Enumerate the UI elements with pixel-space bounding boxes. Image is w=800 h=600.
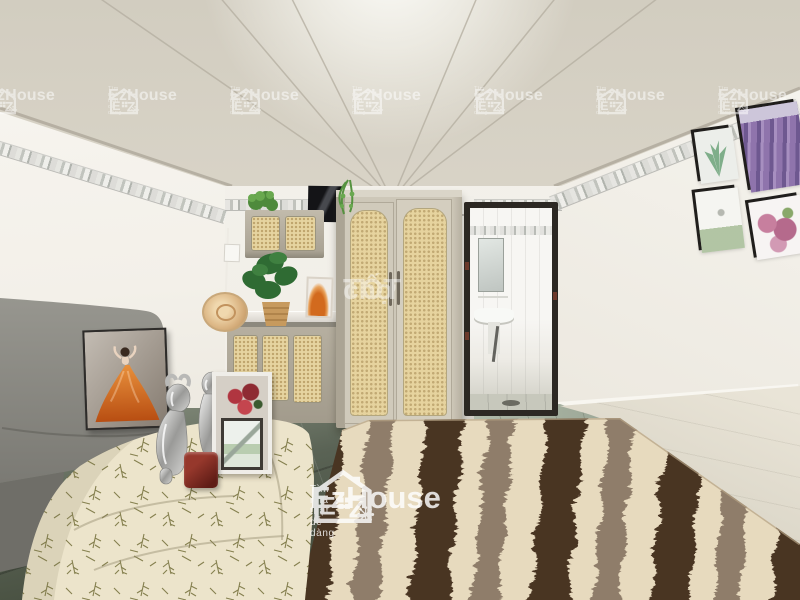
- plant-on-cabinet: [244, 186, 280, 214]
- bathroom-shelf: [478, 296, 508, 298]
- lamp-ring: [216, 304, 236, 321]
- wardrobe-handle: [397, 271, 400, 305]
- bathroom-mirror: [478, 238, 504, 292]
- picture-aloe-plant: [691, 125, 736, 182]
- mini-orange-artwork: [305, 277, 333, 319]
- framed-landscape-mini: [221, 418, 263, 470]
- monstera-plant: [240, 246, 306, 328]
- cane-panel: [350, 210, 388, 416]
- display-lantern-box: [212, 372, 272, 474]
- door-hinge: [553, 292, 557, 300]
- lower-cabinet-door: [293, 335, 322, 403]
- floor-drain: [502, 400, 520, 406]
- switch-box: [224, 244, 241, 263]
- wardrobe: [336, 190, 462, 428]
- bathroom-interior: [470, 208, 552, 410]
- aloe-art: [694, 127, 739, 184]
- hanging-plant: [334, 178, 362, 218]
- wardrobe-door-left: [344, 202, 394, 424]
- shag-rug: [290, 408, 800, 600]
- wardrobe-door-right: [396, 199, 452, 424]
- picture-pink-flowers: [745, 192, 800, 257]
- red-flowers: [222, 382, 266, 418]
- picture-field-sketch: [691, 185, 741, 251]
- wardrobe-handle: [389, 272, 392, 306]
- bathroom-sink: [474, 308, 514, 323]
- bathroom-door: [464, 202, 558, 416]
- red-gift-box: [184, 452, 218, 488]
- cane-panel: [403, 208, 447, 416]
- bathroom-tile-border: [470, 226, 552, 235]
- rattan-wall-lamp: [202, 292, 248, 332]
- door-hinge: [465, 262, 469, 270]
- door-hinge: [465, 332, 469, 340]
- apartment-photo: E Z: [0, 0, 800, 600]
